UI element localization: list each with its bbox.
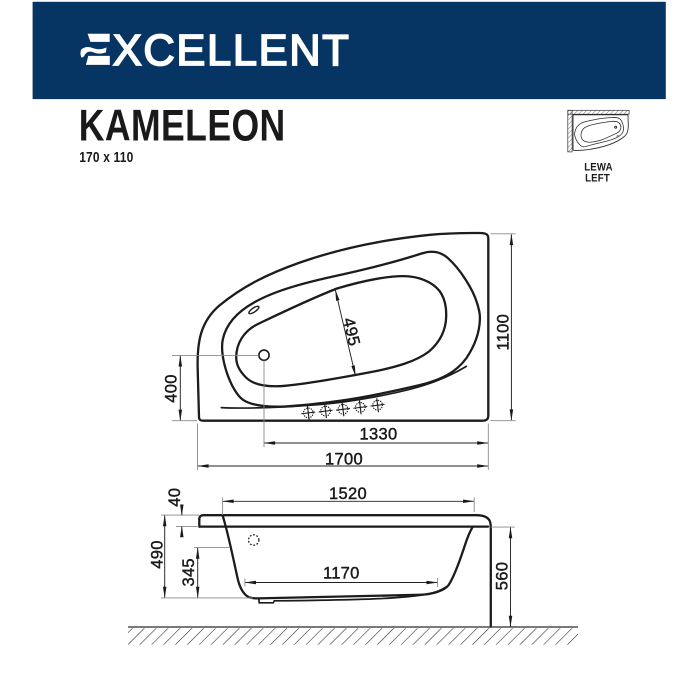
svg-text:495: 495 <box>339 316 363 348</box>
svg-text:LEFT: LEFT <box>585 173 610 185</box>
svg-text:1330: 1330 <box>360 426 398 444</box>
svg-text:1700: 1700 <box>325 450 363 468</box>
svg-text:KAMELEON: KAMELEON <box>79 101 286 151</box>
svg-text:345: 345 <box>180 558 198 586</box>
svg-text:170 x 110: 170 x 110 <box>79 149 133 165</box>
svg-text:490: 490 <box>148 540 166 568</box>
svg-text:40: 40 <box>166 488 184 507</box>
svg-text:1100: 1100 <box>494 314 512 351</box>
svg-text:1520: 1520 <box>329 485 367 503</box>
svg-text:560: 560 <box>494 562 512 590</box>
svg-text:1170: 1170 <box>323 565 360 583</box>
svg-text:XCELLENT: XCELLENT <box>113 27 351 75</box>
svg-text:400: 400 <box>163 374 181 402</box>
